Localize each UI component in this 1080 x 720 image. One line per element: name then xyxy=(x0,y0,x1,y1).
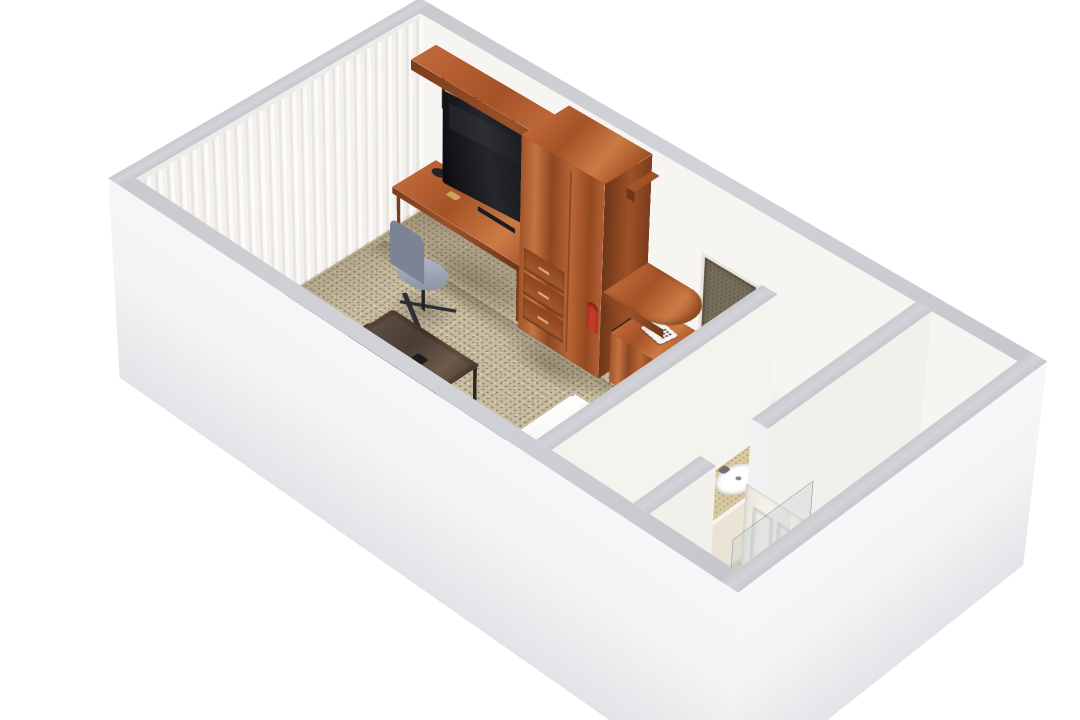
wardrobe-door-seam xyxy=(565,171,571,352)
floorplan-render xyxy=(0,0,1080,720)
desk-accessory xyxy=(445,191,461,201)
scene-perspective xyxy=(0,0,1080,720)
room-structure xyxy=(120,192,1023,720)
red-bag xyxy=(587,300,599,335)
